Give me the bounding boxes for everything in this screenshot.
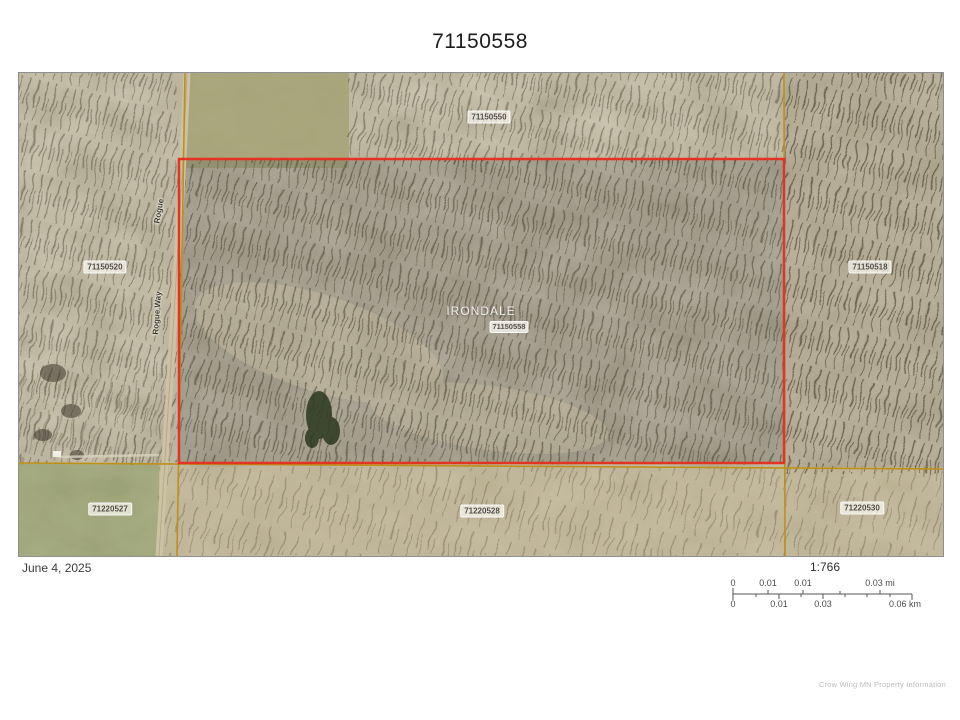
selected-parcel-id: 71150558	[490, 321, 529, 333]
parcel-label: 71150520	[83, 261, 126, 274]
page-title: 71150558	[0, 30, 960, 54]
scale-mi-tick-label: 0.01	[759, 578, 777, 588]
selected-parcel-name: IRONDALE	[446, 304, 515, 318]
scale-km-tick-label: 0.01	[770, 599, 788, 609]
scale-mi-tick-label: 0	[730, 578, 735, 588]
parcel-label: 71220527	[88, 503, 132, 516]
scale-km-tick-label: 0.03	[814, 599, 832, 609]
parcel-label: 71220528	[460, 505, 504, 518]
scale-km-tick-label: 0	[730, 599, 735, 609]
attribution: Crow Wing MN Property Information	[819, 680, 946, 689]
parcel-label: 71220530	[840, 502, 884, 515]
map-date: June 4, 2025	[22, 561, 91, 575]
scale-mi-tick-label: 0.01	[794, 578, 812, 588]
aerial-map: 71150550 71150520 71150518 71220527 7122…	[18, 72, 944, 557]
scale-bar-block: 1:766 0 0.01 0.01 0.03 mi 0	[720, 558, 952, 616]
scale-ratio: 1:766	[720, 560, 930, 574]
parcel-label: 71150550	[467, 111, 510, 124]
scale-mi-tick-label: 0.03 mi	[865, 578, 895, 588]
parcel-label: 71150518	[848, 261, 891, 274]
building	[53, 451, 61, 457]
scale-km-tick-label: 0.06 km	[889, 599, 921, 609]
